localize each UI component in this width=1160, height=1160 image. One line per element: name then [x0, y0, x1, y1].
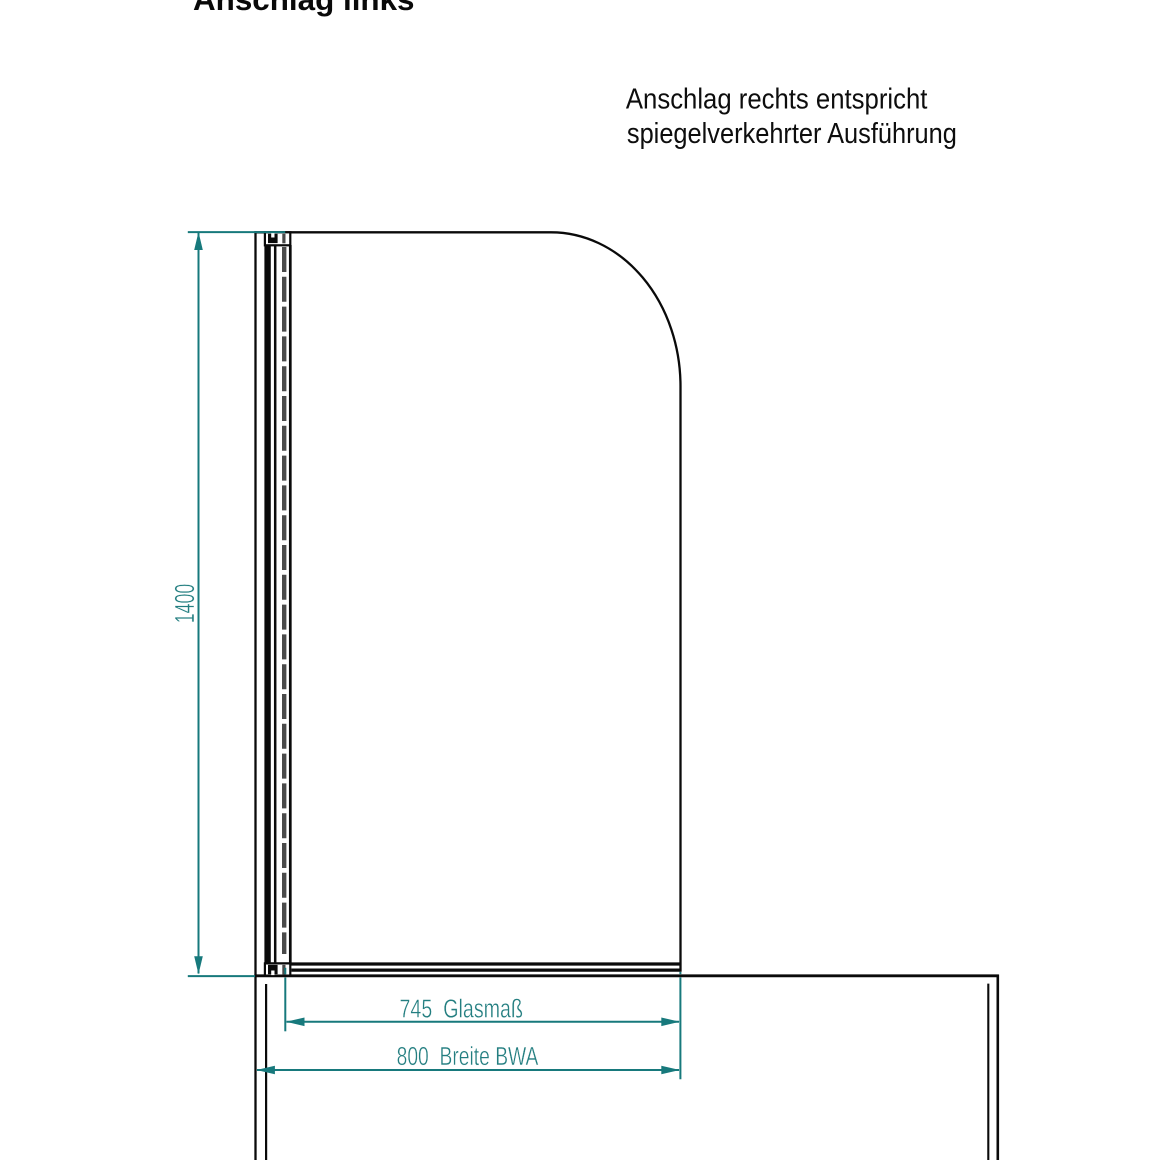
svg-text:1400: 1400: [169, 584, 200, 624]
svg-text:800 Breite BWA: 800 Breite BWA: [397, 1043, 539, 1071]
svg-text:745 Glasmaß: 745 Glasmaß: [400, 996, 524, 1024]
svg-text:Anschlag links: Anschlag links: [193, 0, 415, 17]
svg-text:Anschlag rechts entspricht: Anschlag rechts entspricht: [626, 83, 928, 115]
svg-text:spiegelverkehrter Ausführung: spiegelverkehrter Ausführung: [627, 118, 957, 150]
